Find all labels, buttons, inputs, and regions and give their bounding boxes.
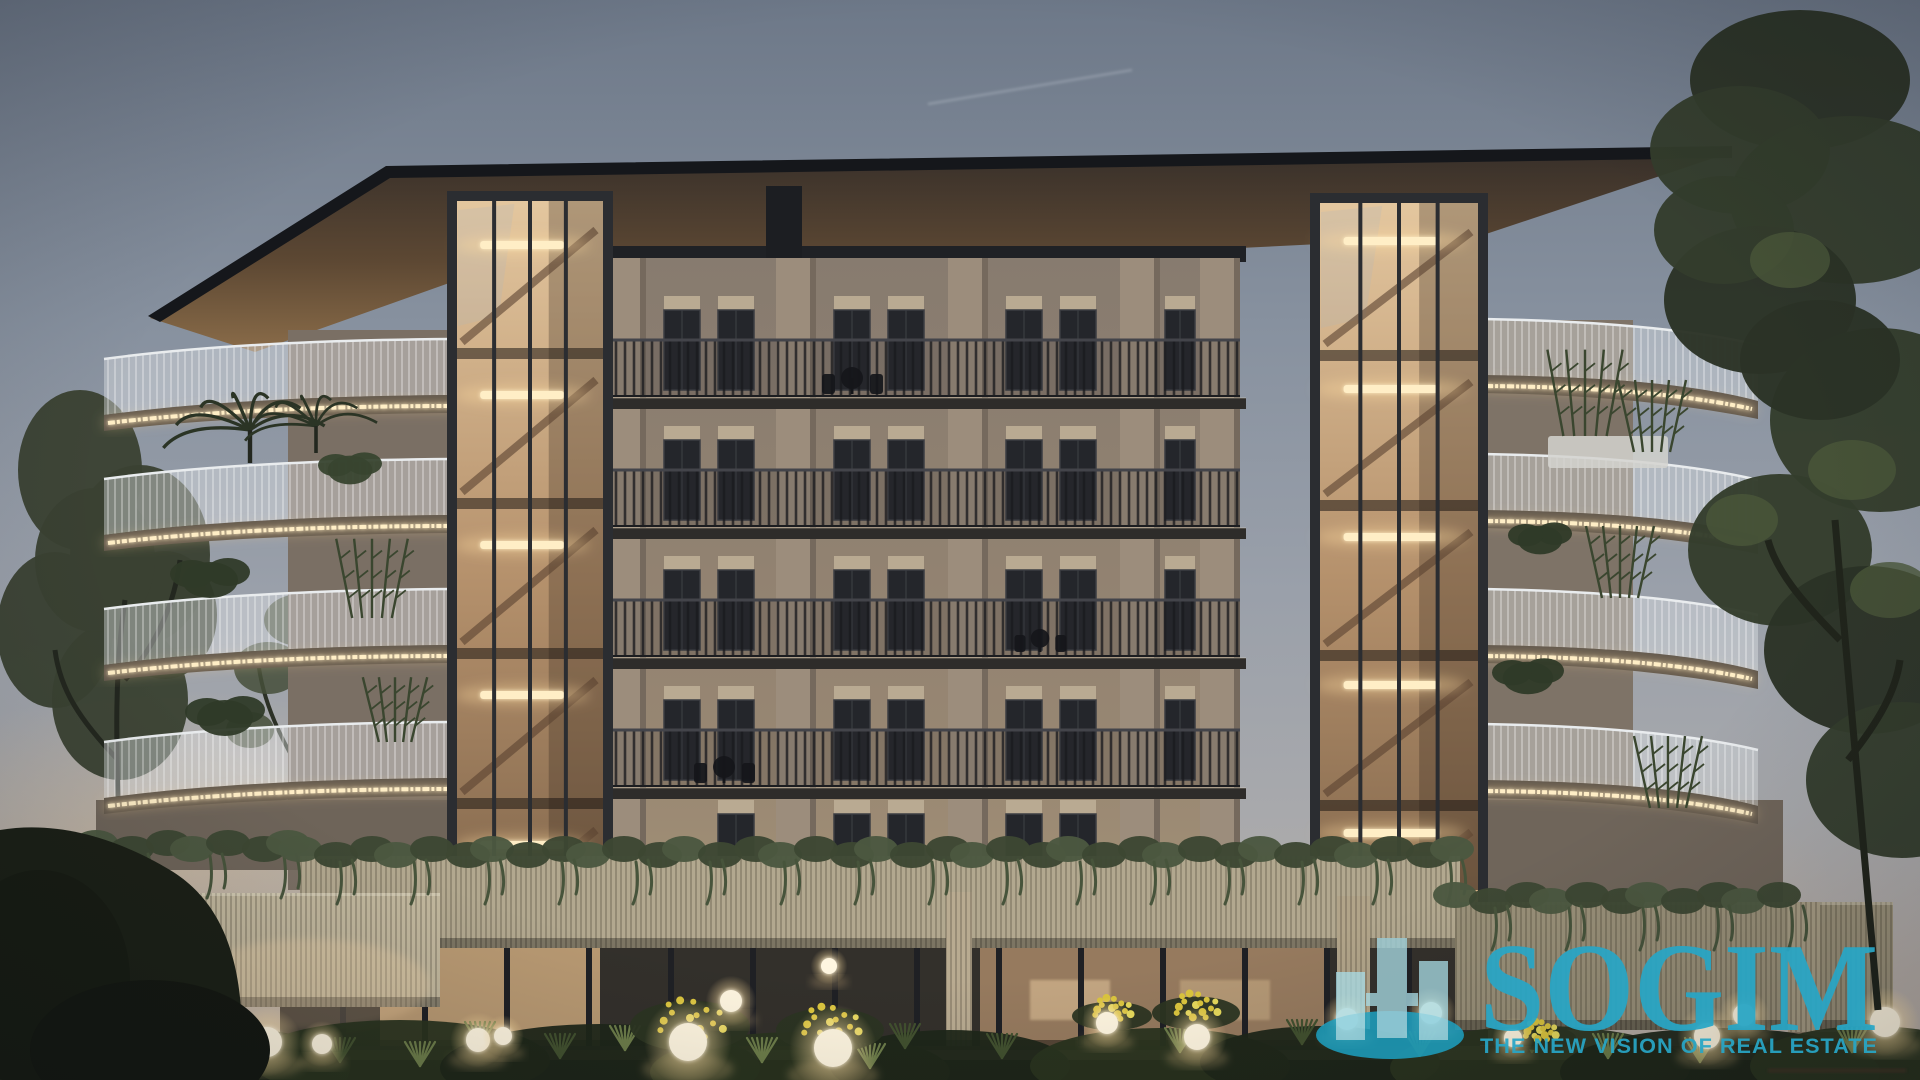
logo-bar-connector: [1407, 993, 1418, 1006]
logo-bar-connector: [1366, 993, 1377, 1006]
logo-tagline: THE NEW VISION OF REAL ESTATE: [1480, 1035, 1878, 1058]
logo-bar-middle: [1377, 938, 1407, 1038]
vignette: [0, 0, 1920, 1080]
photo-credit-fineprint: [1768, 1068, 1906, 1073]
architectural-render: SOGIM THE NEW VISION OF REAL ESTATE: [0, 0, 1920, 1080]
logo-bar-right: [1419, 961, 1448, 1040]
sogim-watermark: SOGIM THE NEW VISION OF REAL ESTATE: [1316, 919, 1878, 1059]
logo-bar-left: [1336, 972, 1365, 1040]
